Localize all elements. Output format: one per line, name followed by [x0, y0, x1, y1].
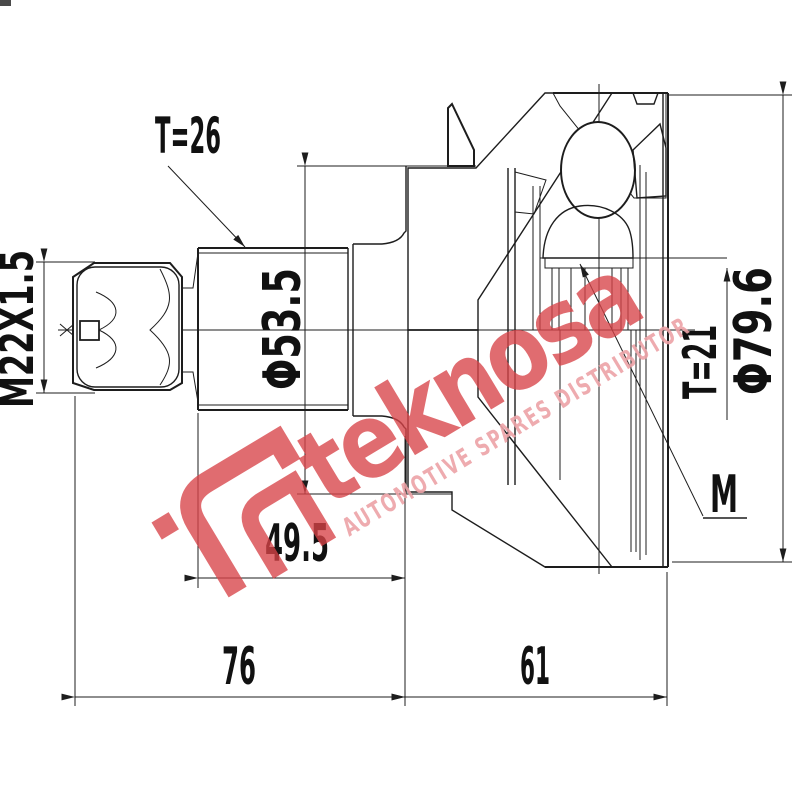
- threaded-stub: [73, 253, 198, 402]
- label-outer-spline: T=26: [155, 107, 221, 165]
- scan-artifact: [0, 0, 11, 6]
- technical-drawing-page: T=26 M22X1.5 Φ53.5 T=21 Φ79.6 M 49.5 76 …: [0, 0, 800, 800]
- label-outer-diameter: Φ79.6: [724, 267, 784, 395]
- cv-joint-drawing: T=26 M22X1.5 Φ53.5 T=21 Φ79.6 M 49.5 76 …: [0, 0, 800, 800]
- bearing-ball: [561, 122, 635, 218]
- label-shaft-length: 76: [222, 637, 256, 697]
- label-module: M: [710, 465, 738, 525]
- label-boot-diameter: Φ53.5: [253, 268, 313, 390]
- key-slot: [80, 321, 99, 340]
- label-joint-length: 61: [520, 637, 550, 697]
- boot-groove-notch: [633, 93, 658, 104]
- label-thread: M22X1.5: [0, 250, 44, 408]
